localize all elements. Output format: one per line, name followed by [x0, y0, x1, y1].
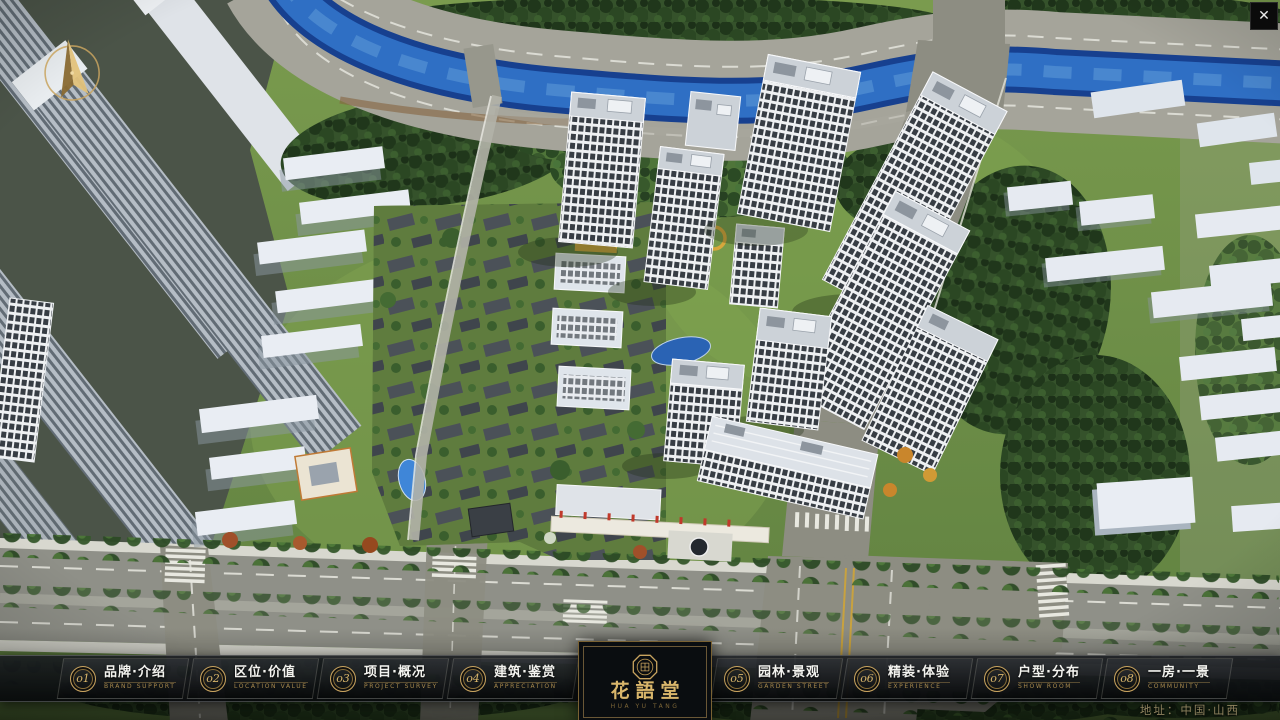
close-button[interactable]: ✕ — [1250, 2, 1278, 30]
nav-labels: 项目·概况 PROJECT SURVEY — [364, 666, 438, 691]
nav-label-en: COMMUNITY — [1148, 682, 1210, 691]
nav-labels: 一房·一景 COMMUNITY — [1148, 666, 1210, 691]
nav-labels: 户型·分布 SHOW ROOM — [1018, 666, 1080, 691]
nav-number-badge: o4 — [460, 666, 486, 692]
nav-number-badge: o1 — [70, 666, 96, 692]
vignette-overlay — [0, 0, 1280, 720]
nav-number-badge: o6 — [854, 666, 880, 692]
brand-title: 花語堂 — [604, 682, 685, 701]
nav-item-architecture[interactable]: o4 建筑·鉴赏 APPRECIATION — [448, 656, 578, 701]
nav-label-zh: 项目·概况 — [364, 666, 438, 681]
logo-panel[interactable]: 花語堂 HUA YU TANG — [578, 641, 712, 720]
nav-labels: 园林·景观 GARDEN STREET — [758, 666, 829, 691]
nav-label-zh: 区位·价值 — [234, 666, 308, 681]
nav-label-en: PROJECT SURVEY — [364, 682, 438, 691]
aerial-masterplan-render — [0, 0, 1280, 720]
nav-item-brand-intro[interactable]: o1 品牌·介绍 BRAND SUPPORT — [58, 656, 188, 701]
close-icon: ✕ — [1258, 8, 1270, 24]
nav-labels: 建筑·鉴赏 APPRECIATION — [494, 666, 557, 691]
brand-seal-icon — [632, 654, 658, 680]
nav-labels: 区位·价值 LOCATION VALUE — [234, 666, 308, 691]
nav-label-zh: 一房·一景 — [1148, 666, 1210, 681]
nav-label-zh: 建筑·鉴赏 — [494, 666, 557, 681]
nav-label-zh: 精装·体验 — [888, 666, 950, 681]
project-address: 地址：中国·山西 — [1140, 702, 1240, 718]
nav-label-zh: 品牌·介绍 — [104, 666, 176, 681]
presentation-stage: ✕ o1 品牌·介绍 BRAND SUPPORT o2 区位·价值 LOCATI… — [0, 0, 1280, 720]
nav-label-en: LOCATION VALUE — [234, 682, 308, 691]
nav-label-en: GARDEN STREET — [758, 682, 829, 691]
nav-label-zh: 户型·分布 — [1018, 666, 1080, 681]
nav-number-badge: o5 — [724, 666, 750, 692]
nav-item-room-view[interactable]: o8 一房·一景 COMMUNITY — [1102, 656, 1232, 701]
nav-item-project-survey[interactable]: o3 项目·概况 PROJECT SURVEY — [318, 656, 448, 701]
nav-item-garden-landscape[interactable]: o5 园林·景观 GARDEN STREET — [712, 656, 842, 701]
nav-labels: 品牌·介绍 BRAND SUPPORT — [104, 666, 176, 691]
nav-number-badge: o7 — [984, 666, 1010, 692]
nav-label-en: EXPERIENCE — [888, 682, 950, 691]
nav-labels: 精装·体验 EXPERIENCE — [888, 666, 950, 691]
nav-number-badge: o8 — [1114, 666, 1140, 692]
nav-label-en: BRAND SUPPORT — [104, 682, 176, 691]
nav-label-en: SHOW ROOM — [1018, 682, 1080, 691]
nav-number-badge: o3 — [330, 666, 356, 692]
nav-item-location-value[interactable]: o2 区位·价值 LOCATION VALUE — [188, 656, 318, 701]
nav-number-badge: o2 — [200, 666, 226, 692]
bottom-nav: o1 品牌·介绍 BRAND SUPPORT o2 区位·价值 LOCATION… — [0, 655, 1280, 702]
nav-label-zh: 园林·景观 — [758, 666, 829, 681]
nav-item-interior-experience[interactable]: o6 精装·体验 EXPERIENCE — [842, 656, 972, 701]
nav-label-en: APPRECIATION — [494, 682, 557, 691]
nav-item-unit-layout[interactable]: o7 户型·分布 SHOW ROOM — [972, 656, 1102, 701]
brand-caption: HUA YU TANG — [611, 703, 680, 710]
